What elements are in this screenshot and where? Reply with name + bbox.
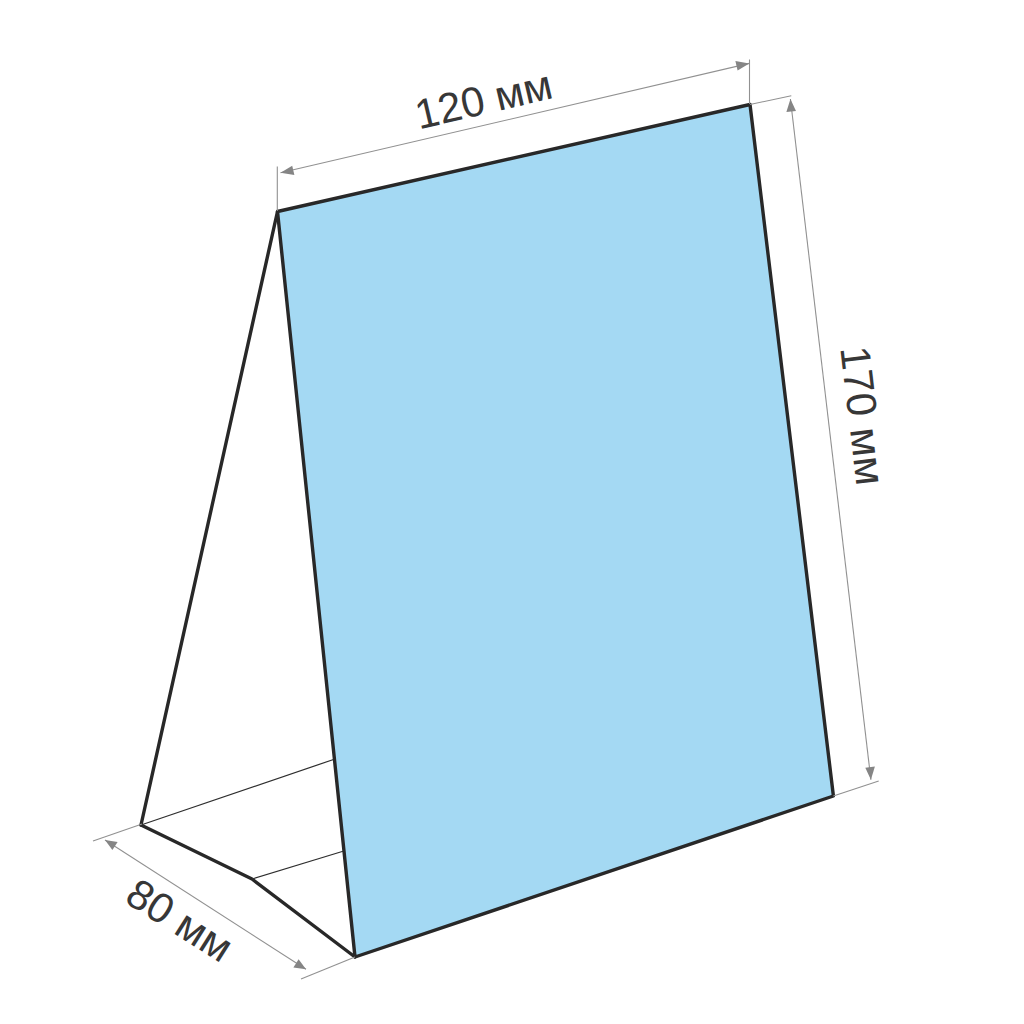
svg-text:120 мм: 120 мм <box>410 61 557 138</box>
svg-text:80 мм: 80 мм <box>118 869 241 971</box>
svg-text:170 мм: 170 мм <box>831 344 894 488</box>
